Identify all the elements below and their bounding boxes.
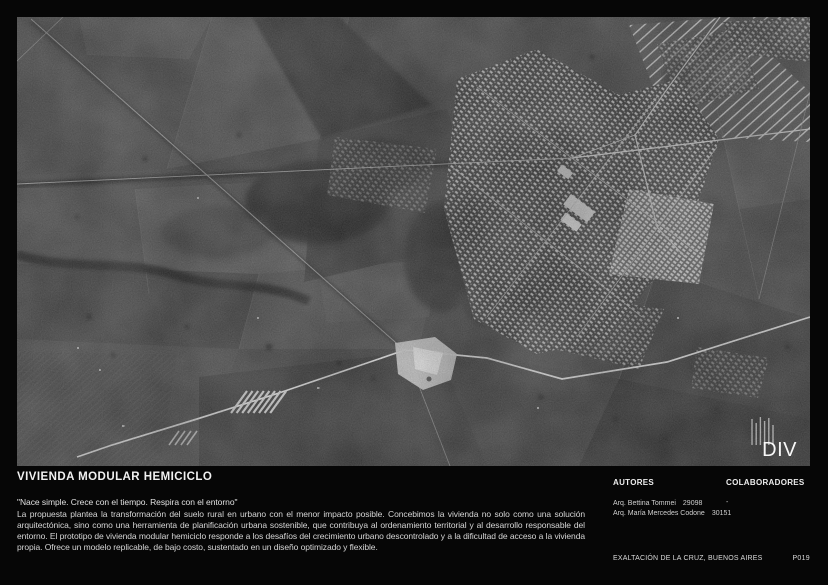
author-row: Arq. María Mercedes Codone 30151: [613, 509, 731, 519]
author-id: 30151: [712, 509, 731, 519]
autores-list: Arq. Bettina Tommei 29098 Arq. María Mer…: [613, 499, 731, 519]
page-number: P019: [792, 555, 810, 562]
project-description: La propuesta plantea la transformación d…: [17, 509, 585, 553]
project-location: EXALTACIÓN DE LA CRUZ, BUENOS AIRES: [613, 555, 763, 562]
project-quote: "Nace simple. Crece con el tiempo. Respi…: [17, 497, 237, 507]
author-name: Arq. Bettina Tommei: [613, 499, 676, 509]
texture-layer: [17, 17, 810, 466]
colaboradores-value: -: [726, 499, 728, 506]
colaboradores-heading: COLABORADORES: [726, 478, 805, 487]
author-id: 29098: [683, 499, 702, 509]
div-watermark: DIV: [762, 439, 797, 462]
aerial-photo: DIV: [17, 17, 810, 466]
project-title: VIVIENDA MODULAR HEMICICLO: [17, 471, 212, 483]
author-row: Arq. Bettina Tommei 29098: [613, 499, 731, 509]
satellite-image: [17, 17, 810, 466]
autores-heading: AUTORES: [613, 478, 654, 487]
author-name: Arq. María Mercedes Codone: [613, 509, 705, 519]
